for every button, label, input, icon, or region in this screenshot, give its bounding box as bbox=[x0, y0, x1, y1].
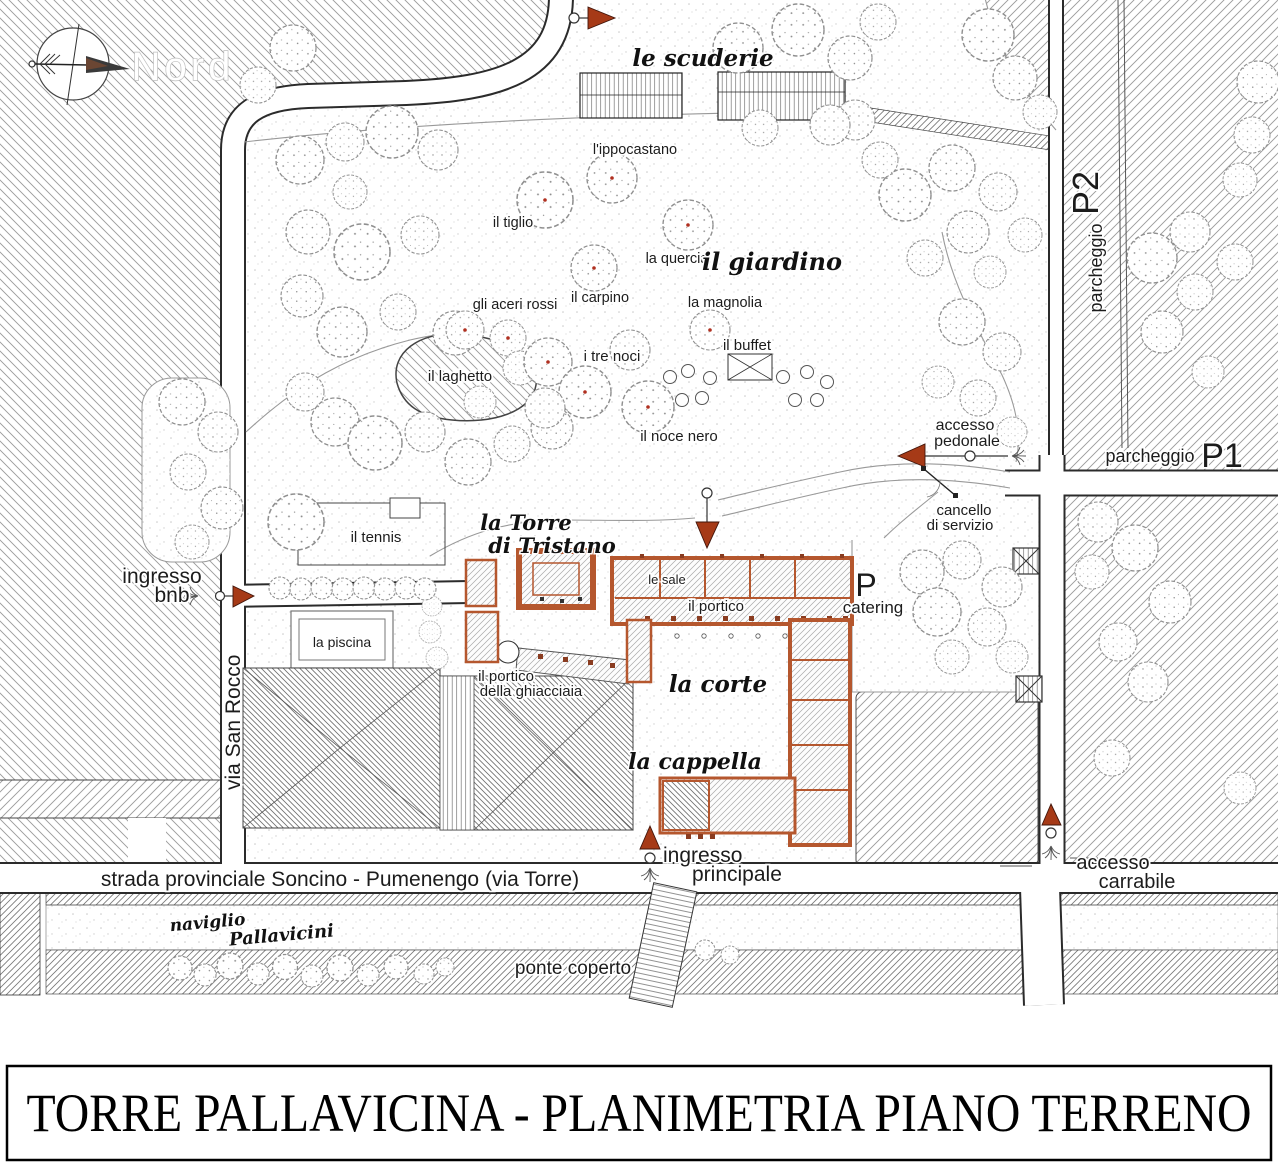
tree-icon bbox=[1127, 233, 1177, 283]
lake-label: il laghetto bbox=[428, 368, 492, 385]
bush-icon bbox=[414, 578, 436, 600]
vehicle-access-label-2: carrabile bbox=[1099, 871, 1176, 893]
tree-icon bbox=[1224, 772, 1256, 804]
bush-icon bbox=[395, 577, 417, 599]
pedestrian-access-label-1: accesso bbox=[936, 417, 995, 434]
chapel-label: la cappella bbox=[628, 749, 762, 775]
bush-icon bbox=[414, 964, 434, 984]
pool-label: la piscina bbox=[313, 634, 372, 650]
tree-icon bbox=[418, 130, 458, 170]
title-block: TORRE PALLAVICINA - PLANIMETRIA PIANO TE… bbox=[7, 1066, 1271, 1160]
stables-label: le scuderie bbox=[632, 45, 773, 72]
tree-icon bbox=[1075, 555, 1109, 589]
tree-icon bbox=[1008, 218, 1042, 252]
tree-icon bbox=[1177, 274, 1213, 310]
bush-icon bbox=[721, 946, 739, 964]
halls-label: le sale bbox=[648, 572, 686, 587]
east-wing bbox=[790, 620, 850, 845]
west-room-1 bbox=[466, 560, 496, 606]
tree-icon bbox=[907, 240, 943, 276]
tree-icon bbox=[1149, 581, 1191, 623]
tree-icon bbox=[1217, 244, 1253, 280]
canal-west-block bbox=[0, 891, 40, 995]
tree-icon bbox=[947, 211, 989, 253]
bush-icon bbox=[301, 965, 323, 987]
buffet-canopy bbox=[728, 354, 772, 380]
bush-icon bbox=[695, 940, 715, 960]
tree-icon bbox=[968, 608, 1006, 646]
bush-icon bbox=[194, 964, 216, 986]
tree-icon bbox=[175, 525, 209, 559]
bush-icon bbox=[327, 955, 353, 981]
tree-icon bbox=[810, 105, 850, 145]
tree-icon bbox=[962, 9, 1014, 61]
tree-icon bbox=[939, 299, 985, 345]
tree-icon bbox=[270, 25, 316, 71]
bush-icon bbox=[273, 955, 298, 980]
main-entry-label-2: principale bbox=[692, 863, 782, 886]
bush-icon bbox=[311, 577, 333, 599]
tree-label-quercia: la quercia bbox=[646, 251, 710, 267]
parking1-code: P1 bbox=[1201, 437, 1243, 475]
strada-provinciale-label: strada provinciale Soncino - Pumenengo (… bbox=[101, 868, 579, 891]
tree-icon bbox=[929, 145, 975, 191]
tree-icon bbox=[1094, 740, 1130, 776]
portico-label: il portico bbox=[688, 598, 744, 615]
tree-icon bbox=[1234, 117, 1270, 153]
west-courtyard-room bbox=[627, 620, 651, 682]
bush-icon bbox=[217, 953, 243, 979]
parking2-code: P2 bbox=[1065, 171, 1106, 215]
tree-label-magnolia: la magnolia bbox=[688, 295, 763, 311]
bush-icon bbox=[290, 578, 312, 600]
icehouse-label-2: della ghiacciaia bbox=[480, 683, 583, 700]
tree-icon bbox=[419, 621, 441, 643]
catering-label: catering bbox=[843, 598, 903, 617]
tree-icon bbox=[1141, 311, 1183, 353]
tree-icon bbox=[1112, 525, 1158, 571]
tree-icon bbox=[494, 426, 530, 462]
tree-icon bbox=[401, 216, 439, 254]
tree-icon bbox=[982, 567, 1022, 607]
bush-icon bbox=[384, 955, 408, 979]
tree-icon bbox=[201, 487, 243, 529]
tree-icon bbox=[326, 123, 364, 161]
tree-icon bbox=[276, 136, 324, 184]
buffet-label: il buffet bbox=[723, 337, 772, 354]
road-canal-crossing bbox=[1040, 888, 1044, 1005]
bnb-entry-label-2: bnb bbox=[154, 584, 189, 607]
tree-label-noci: i tre noci bbox=[584, 348, 641, 365]
tree-icon bbox=[943, 541, 981, 579]
via-san-rocco-label: via San Rocco bbox=[222, 655, 245, 790]
tree-icon bbox=[974, 256, 1006, 288]
tree-label-tiglio: il tiglio bbox=[493, 215, 533, 231]
tree-icon bbox=[913, 588, 961, 636]
parcel-band bbox=[0, 780, 222, 818]
tree-icon bbox=[281, 275, 323, 317]
tree-icon bbox=[198, 412, 238, 452]
pedestrian-access-label-2: pedonale bbox=[934, 433, 1000, 450]
tree-icon bbox=[960, 380, 996, 416]
tree-icon bbox=[922, 366, 954, 398]
service-gate-label-2: di servizio bbox=[927, 517, 994, 534]
tree-icon bbox=[333, 175, 367, 209]
tree-icon bbox=[1223, 163, 1257, 197]
bush-icon bbox=[374, 578, 396, 600]
bush-icon bbox=[357, 964, 379, 986]
tree-icon bbox=[1128, 662, 1168, 702]
tree-icon bbox=[268, 494, 324, 550]
tree-icon bbox=[366, 106, 418, 158]
tree-icon bbox=[1023, 95, 1057, 129]
tree-label-ippocastano: l'ippocastano bbox=[593, 142, 677, 158]
tree-icon bbox=[983, 333, 1021, 371]
tree-icon bbox=[1192, 356, 1224, 388]
chapel bbox=[663, 781, 709, 830]
tree-icon bbox=[348, 416, 402, 470]
bridge-label: ponte coperto bbox=[515, 958, 631, 979]
bush-icon bbox=[168, 956, 192, 980]
tree-icon bbox=[996, 641, 1028, 673]
parcel-southeast bbox=[856, 692, 1038, 866]
parking2-word: parcheggio bbox=[1086, 223, 1106, 312]
tree-icon bbox=[935, 640, 969, 674]
tree-icon bbox=[1170, 212, 1210, 252]
bush-icon bbox=[332, 578, 354, 600]
tree-label-carpino: il carpino bbox=[571, 290, 629, 306]
tennis-label: il tennis bbox=[351, 529, 402, 546]
courtyard-label: la corte bbox=[669, 671, 767, 698]
bush-icon bbox=[353, 577, 375, 599]
tree-icon bbox=[1099, 623, 1137, 661]
site-plan: Nord le scuderie l'ippocastano il tiglio… bbox=[0, 0, 1278, 1166]
tree-icon bbox=[334, 224, 390, 280]
tree-icon bbox=[1078, 502, 1118, 542]
tree-icon bbox=[317, 307, 367, 357]
tree-icon bbox=[426, 647, 448, 669]
drawing-title: TORRE PALLAVICINA - PLANIMETRIA PIANO TE… bbox=[27, 1083, 1252, 1143]
tree-icon bbox=[405, 412, 445, 452]
tree-icon bbox=[445, 439, 491, 485]
icehouse-dome bbox=[497, 641, 519, 663]
tree-icon bbox=[742, 110, 778, 146]
tree-icon bbox=[525, 388, 565, 428]
tree-icon bbox=[464, 386, 496, 418]
tree-icon bbox=[900, 550, 944, 594]
tree-icon bbox=[170, 454, 206, 490]
bush-icon bbox=[269, 577, 291, 599]
tree-icon bbox=[772, 4, 824, 56]
tree-icon bbox=[860, 4, 896, 40]
bush-icon bbox=[436, 958, 454, 976]
tree-icon bbox=[380, 294, 416, 330]
tree-icon bbox=[286, 210, 330, 254]
west-room-2 bbox=[466, 612, 498, 662]
bush-icon bbox=[247, 963, 269, 985]
tree-icon bbox=[993, 56, 1037, 100]
tree-icon bbox=[862, 142, 898, 178]
parking1-word: parcheggio bbox=[1105, 446, 1194, 466]
tower-label-1: la Torre bbox=[480, 510, 572, 535]
tree-icon bbox=[1237, 61, 1278, 103]
tower-label-2: di Tristano bbox=[488, 533, 616, 558]
tree-icon bbox=[997, 417, 1027, 447]
tree-label-noce-nero: il noce nero bbox=[640, 428, 718, 445]
tree-icon bbox=[240, 67, 276, 103]
tree-label-aceri: gli aceri rossi bbox=[473, 297, 558, 313]
tree-icon bbox=[979, 173, 1017, 211]
garden-label: il giardino bbox=[702, 247, 842, 276]
parcel-gap bbox=[128, 818, 166, 864]
tree-icon bbox=[159, 379, 205, 425]
north-label: Nord bbox=[132, 45, 235, 89]
tree-icon bbox=[828, 36, 872, 80]
